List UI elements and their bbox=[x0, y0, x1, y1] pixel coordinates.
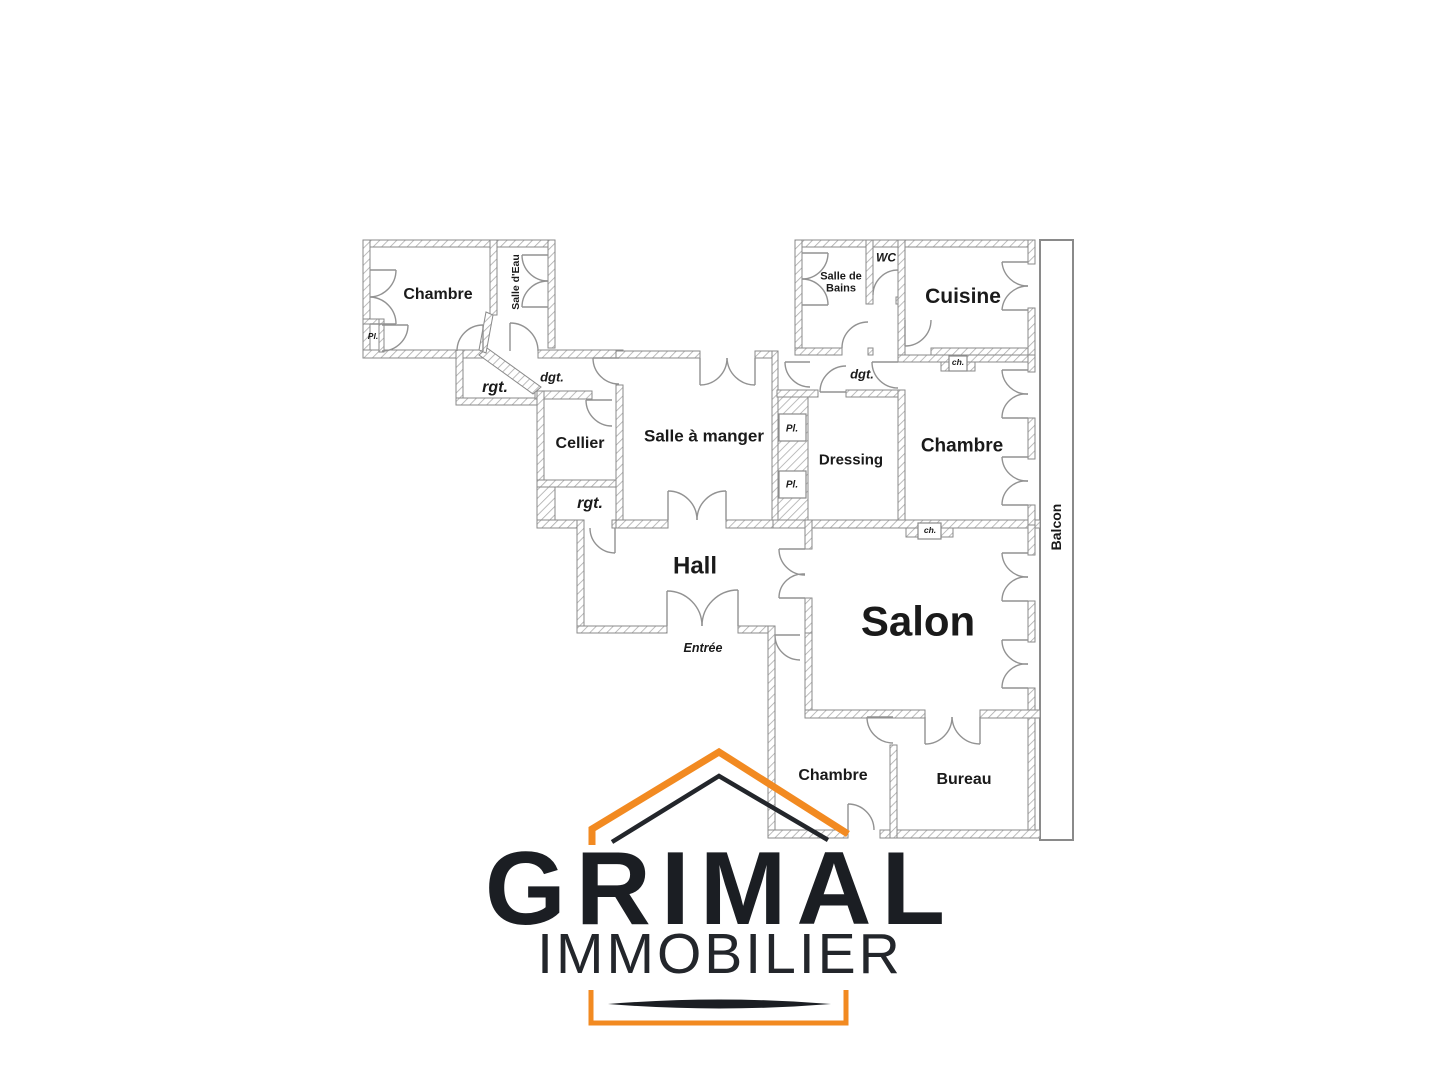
floor-plan-page: Chambre Salle d'Eau Pl. rgt. dgt. Cellie… bbox=[0, 0, 1440, 1080]
logo-divider-line bbox=[608, 1000, 831, 1009]
logo-tagline: IMMOBILIER bbox=[0, 926, 1440, 983]
